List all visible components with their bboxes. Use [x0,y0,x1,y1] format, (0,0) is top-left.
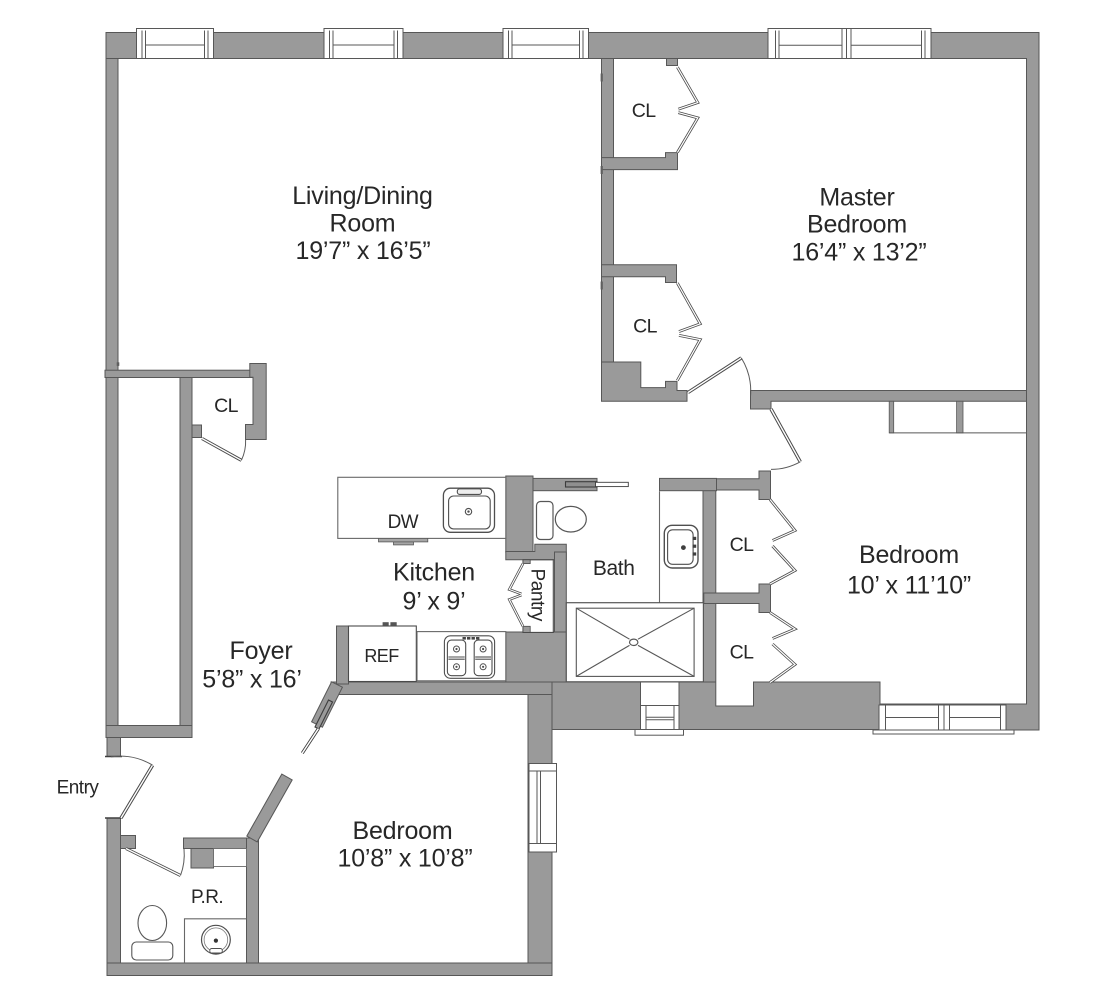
svg-text:CL: CL [632,100,656,122]
svg-text:CL: CL [730,534,754,556]
svg-text:CL: CL [214,395,238,417]
svg-text:Living/Dining: Living/Dining [292,182,433,210]
svg-text:Foyer: Foyer [230,637,293,665]
svg-text:10’8” x 10’8”: 10’8” x 10’8” [338,845,473,873]
svg-text:9’ x 9’: 9’ x 9’ [403,588,466,616]
svg-text:Kitchen: Kitchen [393,559,475,587]
svg-text:Master: Master [819,184,894,212]
svg-text:Bedroom: Bedroom [352,817,452,845]
svg-text:P.R.: P.R. [191,887,223,908]
svg-text:Pantry: Pantry [526,568,547,621]
svg-text:Entry: Entry [57,778,100,799]
svg-text:Room: Room [330,210,396,238]
svg-text:REF: REF [364,646,399,666]
svg-text:CL: CL [633,316,657,338]
svg-text:10’ x 11’10”: 10’ x 11’10” [847,572,971,600]
svg-text:19’7” x 16’5”: 19’7” x 16’5” [296,237,431,265]
svg-text:CL: CL [730,642,754,664]
svg-text:Bedroom: Bedroom [859,541,959,569]
svg-text:16’4” x 13’2”: 16’4” x 13’2” [792,239,927,267]
svg-text:5’8” x 16’: 5’8” x 16’ [202,666,301,694]
svg-text:Bedroom: Bedroom [807,211,907,239]
svg-text:Bath: Bath [593,557,635,580]
svg-text:DW: DW [388,512,419,533]
